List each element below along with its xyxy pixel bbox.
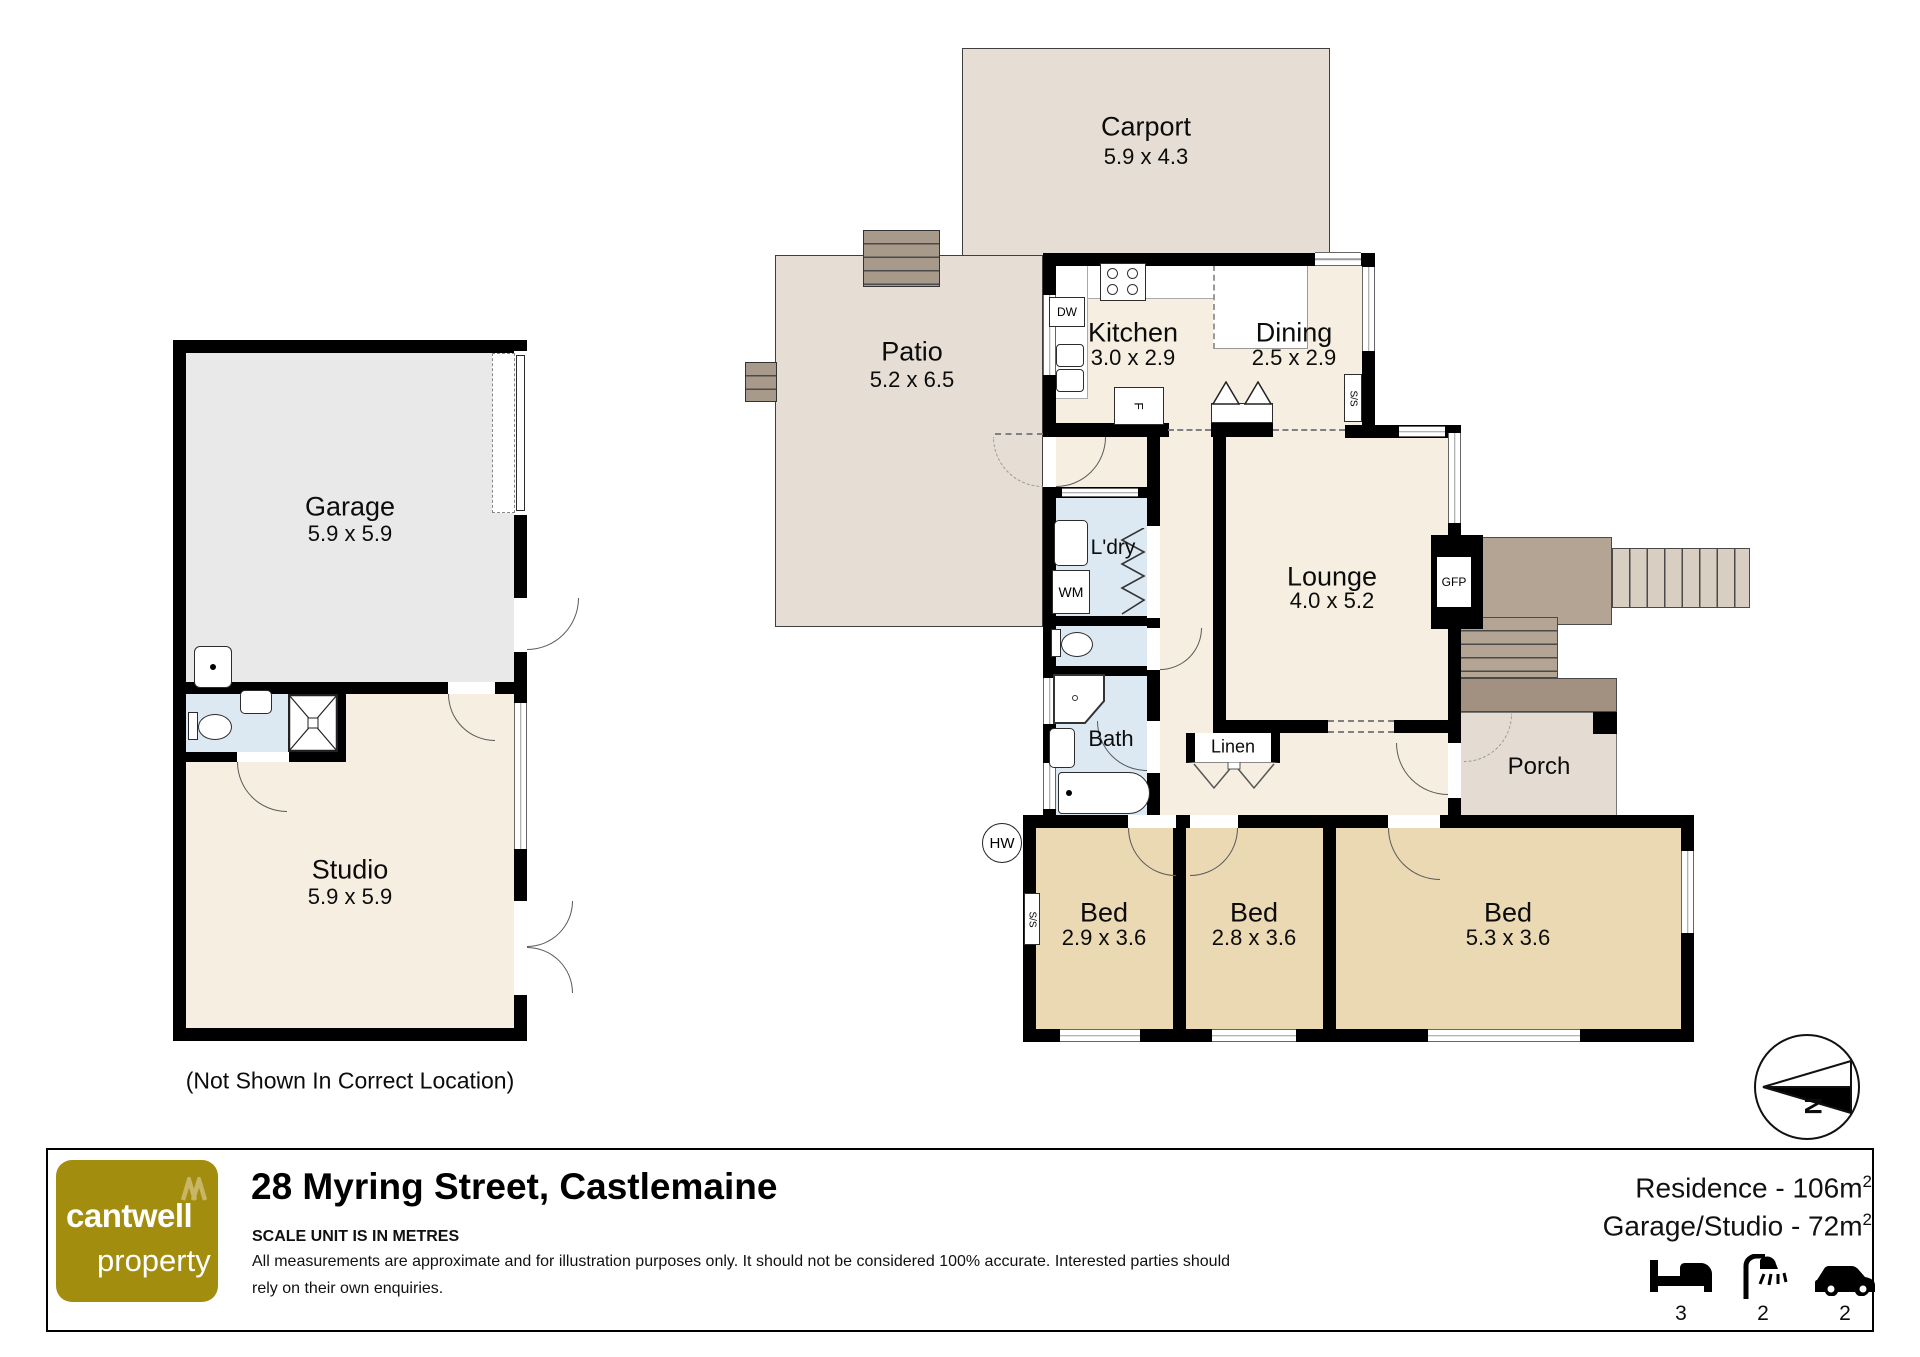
residence-area: Residence - 106m2 [1635, 1172, 1872, 1204]
door-arc [527, 947, 573, 993]
washing-machine: WM [1052, 570, 1090, 614]
residence-area-sup: 2 [1863, 1172, 1872, 1191]
window [1212, 1029, 1296, 1042]
smoke-sensor: S/S [1024, 893, 1040, 945]
patio-steps [863, 230, 940, 287]
hot-water-label: HW [990, 835, 1015, 852]
disclaimer-line2: rely on their own enquiries. [252, 1280, 443, 1298]
shower-icon [1053, 674, 1105, 724]
floorplan-page: DW F WM HW GFP S/S S/S Carport 5.9 x 4.3… [0, 0, 1920, 1357]
room-label-carport: Carport [1101, 112, 1191, 143]
shower-icon [288, 694, 338, 752]
address-title: 28 Myring Street, Castlemaine [251, 1166, 777, 1208]
north-label: N [1798, 1097, 1826, 1114]
location-note: (Not Shown In Correct Location) [186, 1068, 515, 1095]
room-dims-kitchen: 3.0 x 2.9 [1091, 345, 1175, 371]
disclaimer-line1: All measurements are approximate and for… [252, 1253, 1230, 1271]
toilet-bowl [198, 714, 232, 740]
room-label-bed3: Bed [1484, 898, 1532, 929]
roller-door-dashed [492, 353, 515, 513]
bathtub-faucet [1066, 790, 1072, 796]
ss-label: S/S [1348, 390, 1359, 406]
gas-fireplace: GFP [1437, 557, 1471, 607]
burner-icon [1107, 268, 1118, 279]
garage-studio-area: Garage/Studio - 72m2 [1603, 1210, 1872, 1242]
door-opening [1128, 815, 1176, 828]
room-label-linen: Linen [1211, 737, 1255, 758]
door-opening [1147, 526, 1160, 618]
residence-area-text: Residence - 106m [1635, 1172, 1862, 1203]
room-dims-bed2: 2.8 x 3.6 [1212, 925, 1296, 951]
window [1681, 851, 1694, 933]
room-dims-garage: 5.9 x 5.9 [308, 521, 392, 547]
window [1428, 1029, 1580, 1042]
dishwasher: DW [1049, 297, 1085, 327]
porch-roof-strip [1457, 678, 1617, 712]
brand-name: cantwell [66, 1197, 192, 1235]
room-label-bath: Bath [1088, 726, 1133, 752]
room-label-garage: Garage [305, 492, 395, 523]
double-door-threshold [1211, 403, 1273, 423]
shower-count-icon [1740, 1254, 1788, 1300]
bath-count: 2 [1757, 1302, 1769, 1326]
washing-machine-label: WM [1059, 584, 1084, 600]
dashed-line [1168, 429, 1211, 431]
kitchen-sink [1056, 344, 1084, 367]
wall [173, 1028, 527, 1041]
window [1060, 1029, 1140, 1042]
compass [1754, 1034, 1860, 1140]
wall [1213, 435, 1226, 733]
toilet-bowl [1061, 632, 1093, 657]
toilet-tank [188, 712, 198, 740]
hot-water-unit: HW [982, 823, 1022, 863]
window [1448, 433, 1461, 523]
window [1062, 488, 1138, 497]
bed-icon [1648, 1258, 1714, 1298]
door-opening [1388, 815, 1440, 828]
door-opening [514, 901, 527, 995]
laundry-sink [1054, 520, 1088, 566]
room-label-porch: Porch [1508, 753, 1571, 781]
door-opening [237, 752, 289, 762]
car-count: 2 [1839, 1302, 1851, 1326]
door-arc [527, 598, 579, 650]
porch-post [1593, 712, 1617, 734]
burner-icon [1127, 268, 1138, 279]
room-label-patio: Patio [881, 337, 943, 368]
room-label-kitchen: Kitchen [1088, 318, 1178, 349]
dashed-line [995, 433, 1043, 435]
gfp-label: GFP [1442, 575, 1467, 589]
car-icon [1812, 1260, 1878, 1296]
bed-count: 3 [1675, 1302, 1687, 1326]
ss-label: S/S [1027, 911, 1038, 927]
brand-m-icon [181, 1177, 207, 1201]
stove [1100, 263, 1146, 301]
toilet-tank [1051, 629, 1061, 657]
stairs-east [1612, 548, 1750, 608]
fridge-label: F [1132, 402, 1146, 409]
door-opening [1147, 721, 1160, 773]
room-label-bed1: Bed [1080, 898, 1128, 929]
room-label-laundry: L'dry [1091, 536, 1136, 560]
wall [1323, 828, 1336, 1029]
brand-tagline: property [97, 1243, 211, 1279]
room-dims-lounge: 4.0 x 5.2 [1290, 588, 1374, 614]
wall [1023, 815, 1694, 828]
window [514, 703, 527, 849]
room-dims-studio: 5.9 x 5.9 [308, 884, 392, 910]
patio-side-step [745, 362, 777, 402]
wall [173, 340, 527, 353]
burner-icon [1107, 284, 1118, 295]
door-opening [1043, 437, 1056, 487]
deck-landing [1482, 537, 1612, 625]
window [1399, 426, 1445, 437]
room-dims-dining: 2.5 x 2.9 [1252, 345, 1336, 371]
bathroom-sink [240, 690, 272, 714]
dishwasher-label: DW [1057, 305, 1077, 319]
fridge: F [1114, 387, 1164, 425]
cased-opening [1328, 720, 1394, 733]
double-door-icon [1212, 381, 1272, 405]
door-opening [448, 682, 495, 694]
garage-sink-tap [210, 664, 216, 670]
garage-studio-area-text: Garage/Studio - 72m [1603, 1210, 1863, 1241]
window [1043, 763, 1056, 809]
door-opening [1448, 743, 1461, 798]
door-opening [1190, 815, 1238, 828]
room-dims-bed1: 2.9 x 3.6 [1062, 925, 1146, 951]
room-label-studio: Studio [312, 855, 389, 886]
garage-studio-area-sup: 2 [1863, 1210, 1872, 1229]
roller-door-panel [516, 355, 525, 511]
room-label-dining: Dining [1256, 318, 1333, 349]
door-opening [1147, 628, 1160, 670]
door-opening [514, 598, 527, 652]
scale-note: SCALE UNIT IS IN METRES [252, 1228, 459, 1246]
door-arc [527, 901, 573, 947]
burner-icon [1127, 284, 1138, 295]
dashed-line [1273, 429, 1345, 431]
window [1315, 252, 1361, 266]
wall [1043, 423, 1169, 437]
room-dims-bed3: 5.3 x 3.6 [1466, 925, 1550, 951]
room-dims-carport: 5.9 x 4.3 [1104, 144, 1188, 170]
smoke-sensor: S/S [1344, 374, 1362, 422]
window [1362, 267, 1375, 351]
kitchen-sink [1056, 369, 1084, 392]
bifold-door-icon [1192, 762, 1276, 792]
north-arrow-icon [1756, 1036, 1858, 1138]
room-label-bed2: Bed [1230, 898, 1278, 929]
room-dims-patio: 5.2 x 6.5 [870, 367, 954, 393]
bath-sink [1049, 728, 1075, 768]
wall [1053, 616, 1147, 626]
